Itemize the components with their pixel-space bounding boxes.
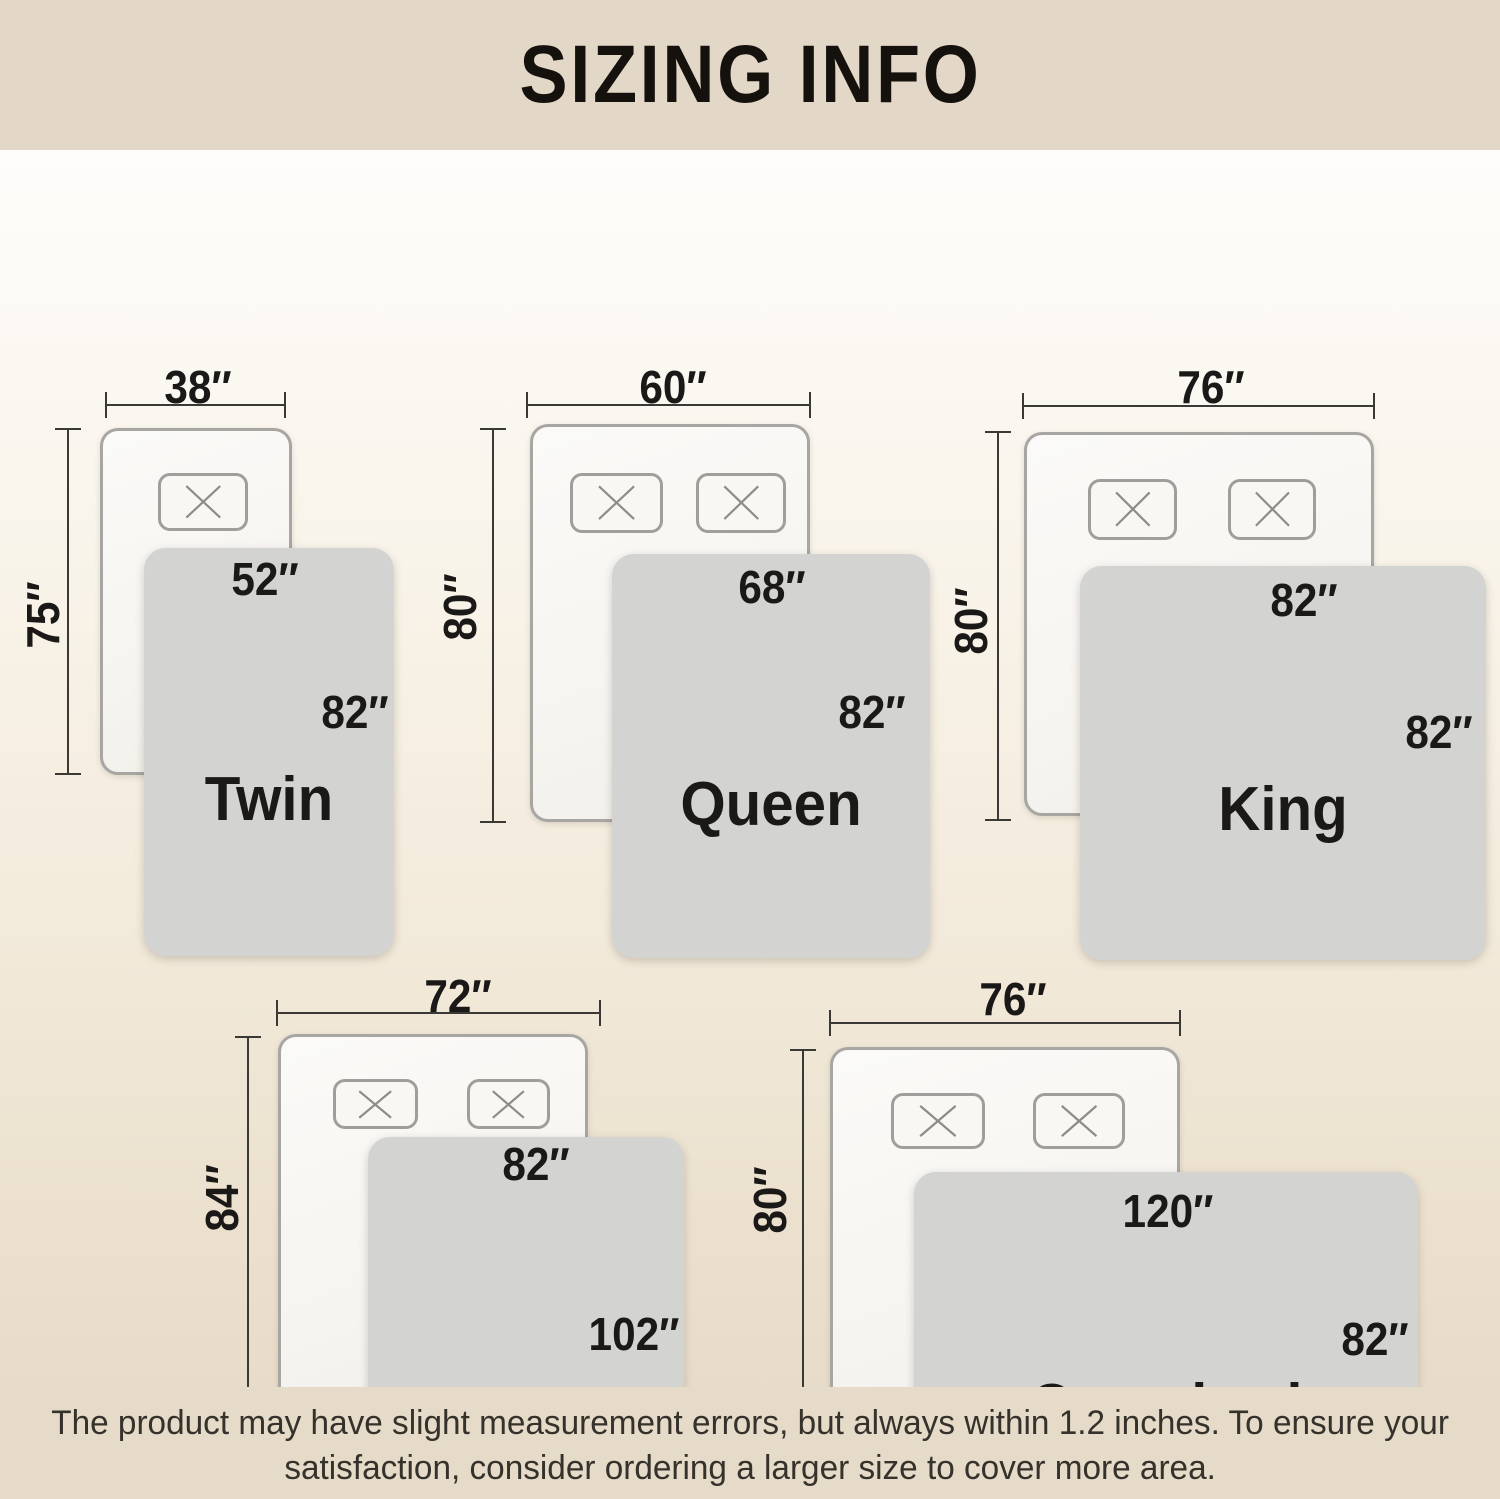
blanket-width-label: 82″ — [502, 1137, 569, 1191]
mattress-height-label: 75″ — [16, 581, 70, 648]
blanket-width-label: 120″ — [1123, 1184, 1214, 1238]
pillow — [1033, 1093, 1125, 1149]
height-dimension-line — [492, 429, 494, 822]
blanket-width-label: 52″ — [231, 552, 298, 606]
blanket: 68″ 82″ Queen — [612, 554, 930, 958]
size-name-label: King — [1092, 781, 1474, 840]
mattress-height-label: 84″ — [195, 1164, 249, 1231]
pillow-x-icon — [476, 1086, 541, 1123]
pillow-x-icon — [1043, 1100, 1115, 1142]
pillow — [467, 1079, 550, 1129]
disclaimer-text: The product may have slight measurement … — [51, 1395, 1449, 1491]
blanket-height-label: 102″ — [589, 1307, 680, 1361]
blanket: 52″ 82″ Twin — [144, 548, 394, 956]
width-dimension-line — [106, 404, 285, 406]
height-dimension-line — [67, 429, 69, 774]
pillow — [333, 1079, 418, 1129]
height-dimension-line — [802, 1050, 804, 1413]
pillow — [1088, 479, 1177, 540]
disclaimer-bar: The product may have slight measurement … — [0, 1387, 1500, 1499]
size-name-label: Twin — [152, 771, 387, 830]
disclaimer-line-1: The product may have slight measurement … — [51, 1404, 1449, 1442]
pillow-x-icon — [168, 480, 239, 524]
width-dimension-line — [277, 1012, 600, 1014]
blanket-width-label: 68″ — [738, 560, 805, 614]
pillow-x-icon — [342, 1086, 408, 1123]
page-title: SIZING INFO — [519, 28, 981, 122]
blanket-height-label: 82″ — [1405, 705, 1472, 759]
height-dimension-line — [997, 432, 999, 820]
pillow — [696, 473, 786, 533]
blanket-height-label: 82″ — [1341, 1312, 1408, 1366]
pillow-x-icon — [580, 480, 653, 525]
pillow-x-icon — [706, 480, 777, 525]
mattress-height-label: 80″ — [944, 587, 998, 654]
diagram-twin: 38″ 75″ 52″ 82″ Twin — [40, 360, 420, 980]
mattress-height-label: 80″ — [433, 573, 487, 640]
header-bar: SIZING INFO — [0, 0, 1500, 150]
diagram-king: 76″ 80″ 82″ 82″ King — [960, 360, 1500, 980]
height-dimension-line — [247, 1037, 249, 1407]
pillow — [1228, 479, 1316, 540]
pillow-x-icon — [1098, 486, 1168, 532]
width-dimension-line — [830, 1022, 1180, 1024]
mattress-width-label: 76″ — [979, 972, 1046, 1026]
size-name-label: Queen — [622, 776, 921, 835]
width-dimension-line — [1023, 405, 1374, 407]
mattress-width-label: 72″ — [424, 969, 491, 1023]
width-dimension-line — [527, 404, 810, 406]
blanket-height-label: 82″ — [321, 685, 388, 739]
blanket-height-label: 82″ — [838, 685, 905, 739]
pillow — [158, 473, 248, 531]
blanket-width-label: 82″ — [1270, 573, 1337, 627]
pillow — [891, 1093, 985, 1149]
pillow-x-icon — [901, 1100, 975, 1142]
pillow-x-icon — [1238, 486, 1307, 532]
pillow — [570, 473, 663, 533]
sizing-info-page: SIZING INFO 38″ 75″ 52″ 82″ Twin 60″ 80″ — [0, 0, 1500, 1499]
diagram-area: 38″ 75″ 52″ 82″ Twin 60″ 80″ — [0, 150, 1500, 1387]
diagram-queen: 60″ 80″ 68″ 82″ Queen — [440, 360, 960, 980]
blanket: 82″ 82″ King — [1080, 566, 1486, 960]
mattress-height-label: 80″ — [743, 1166, 797, 1233]
disclaimer-line-2: satisfaction, consider ordering a larger… — [284, 1449, 1216, 1487]
